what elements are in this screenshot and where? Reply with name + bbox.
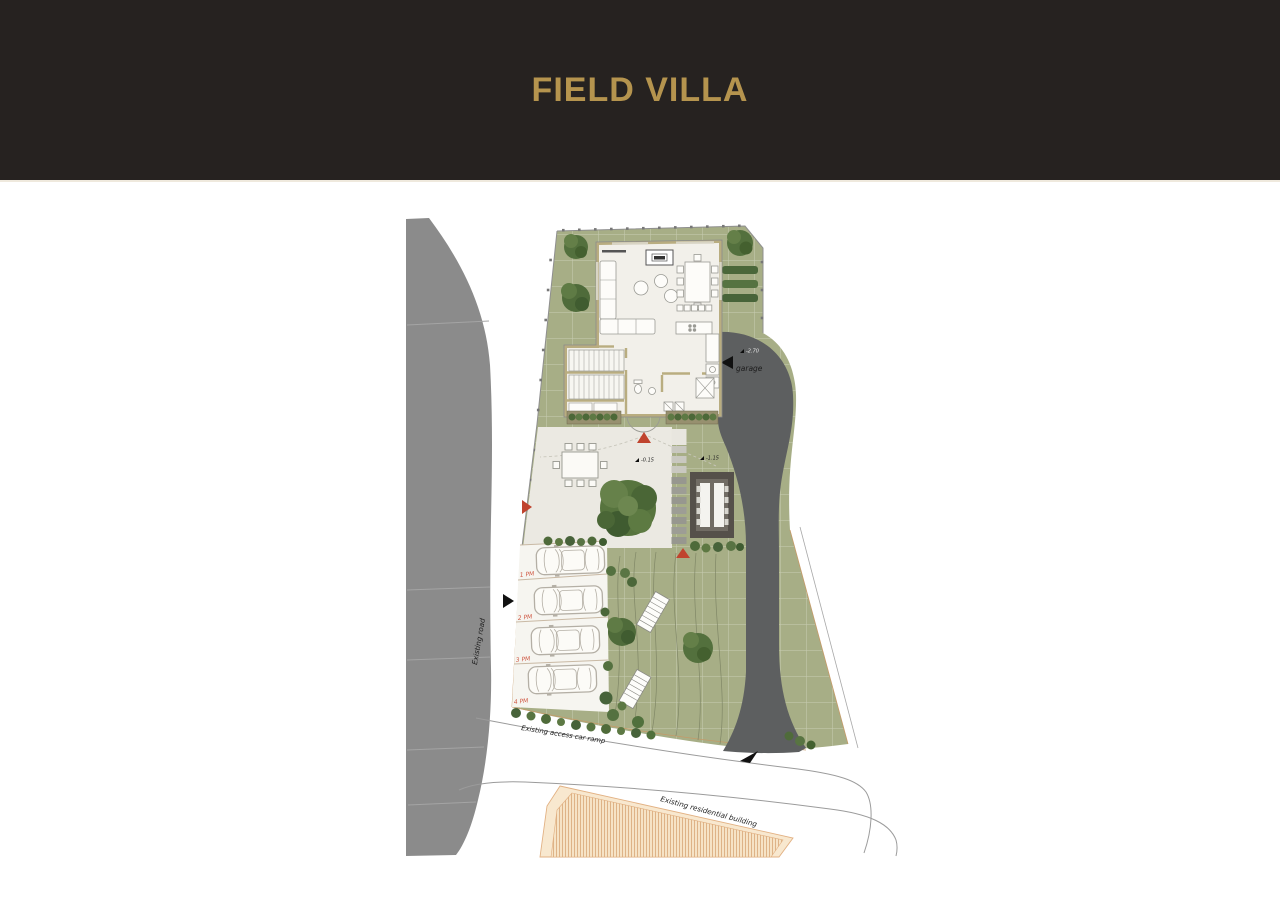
site-plan: Existing road Existing access car ramp E… [0,180,1280,905]
svg-text:-0.15: -0.15 [641,458,654,464]
title-bar: FIELD VILLA [0,0,1280,182]
hedge-rows [722,266,758,302]
svg-text:-2.70: -2.70 [746,349,759,355]
svg-text:-1.15: -1.15 [706,456,719,462]
car [534,583,603,617]
page-title: FIELD VILLA [532,71,749,110]
road-direction-arrow-icon [503,594,514,608]
parking-area: 1 PM 2 PM 3 PM 4 PM [512,540,609,712]
site-plan-drawing: Existing road Existing access car ramp E… [0,180,1280,905]
existing-road: Existing road [406,218,492,856]
existing-residential-building: Existing residential building [540,786,793,857]
ramp-direction-arrow-icon [740,751,758,763]
slide: FIELD VILLA Existing road [0,0,1280,905]
courtyard-tree [597,480,657,537]
staircase [569,350,624,413]
car [528,662,597,696]
car [531,623,600,657]
tree [727,230,753,256]
garage-label: garage [736,364,763,373]
car [536,543,605,577]
road-surface [406,218,492,856]
fireplace [646,250,673,265]
